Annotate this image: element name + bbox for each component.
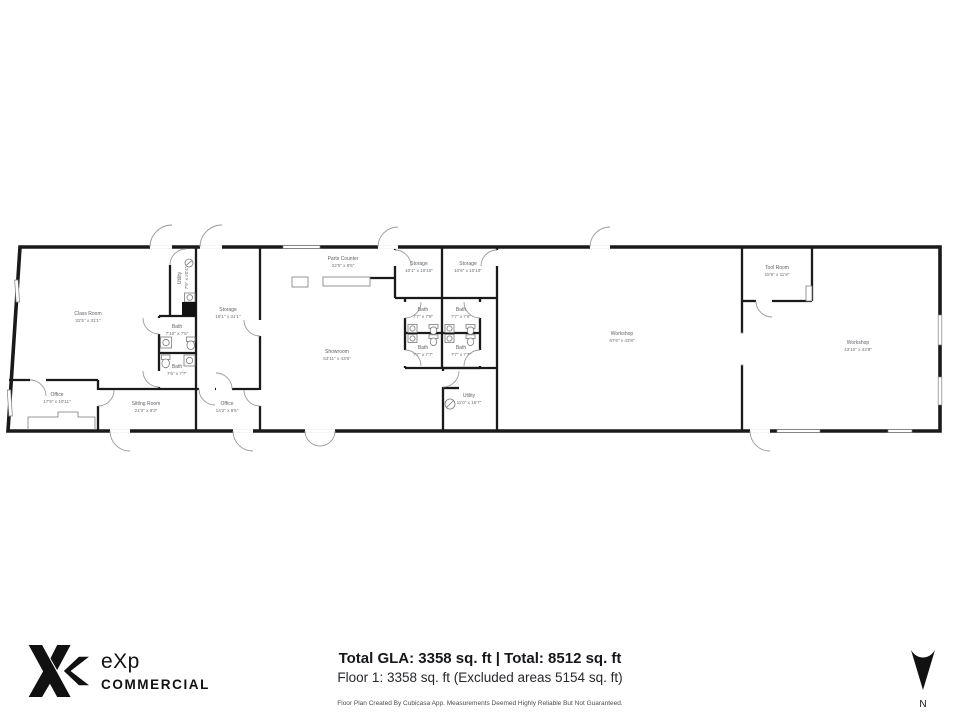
floor-area-line: Floor 1: 3358 sq. ft (Excluded areas 515… bbox=[0, 670, 960, 685]
sink-basin-icon bbox=[447, 326, 452, 331]
area-totals: Total GLA: 3358 sq. ft | Total: 8512 sq.… bbox=[0, 650, 960, 685]
toilet-icon bbox=[467, 327, 474, 335]
floor-plan-page: Class Room 32'5" x 31'1" Utility 7'9" x … bbox=[0, 0, 960, 720]
floor-plan-drawing bbox=[0, 0, 960, 720]
sink-basin-icon bbox=[410, 326, 415, 331]
toilet-icon bbox=[187, 341, 195, 350]
sink-basin-icon bbox=[186, 357, 192, 363]
footer: eXp COMMERCIAL Total GLA: 3358 sq. ft | … bbox=[0, 636, 960, 720]
disclaimer-text: Floor Plan Created By Cubicasa App. Meas… bbox=[0, 700, 960, 707]
north-compass: N bbox=[903, 648, 943, 710]
exterior-walls bbox=[8, 247, 940, 431]
sink-basin-icon bbox=[163, 339, 169, 345]
total-gla-line: Total GLA: 3358 sq. ft | Total: 8512 sq.… bbox=[0, 650, 960, 667]
counter-icon bbox=[292, 277, 308, 287]
toilet-icon bbox=[162, 359, 170, 368]
compass-label: N bbox=[903, 699, 943, 710]
sink-basin-icon bbox=[187, 295, 193, 301]
toilet-icon bbox=[430, 327, 437, 335]
sink-basin-icon bbox=[447, 336, 452, 341]
chimney-block bbox=[182, 302, 196, 316]
sink-basin-icon bbox=[410, 336, 415, 341]
toilet-icon bbox=[430, 338, 437, 346]
toilet-icon bbox=[467, 338, 474, 346]
north-arrow-icon bbox=[909, 648, 937, 692]
wall-chase-icon bbox=[806, 286, 812, 301]
parts-counter-icon bbox=[323, 277, 370, 286]
